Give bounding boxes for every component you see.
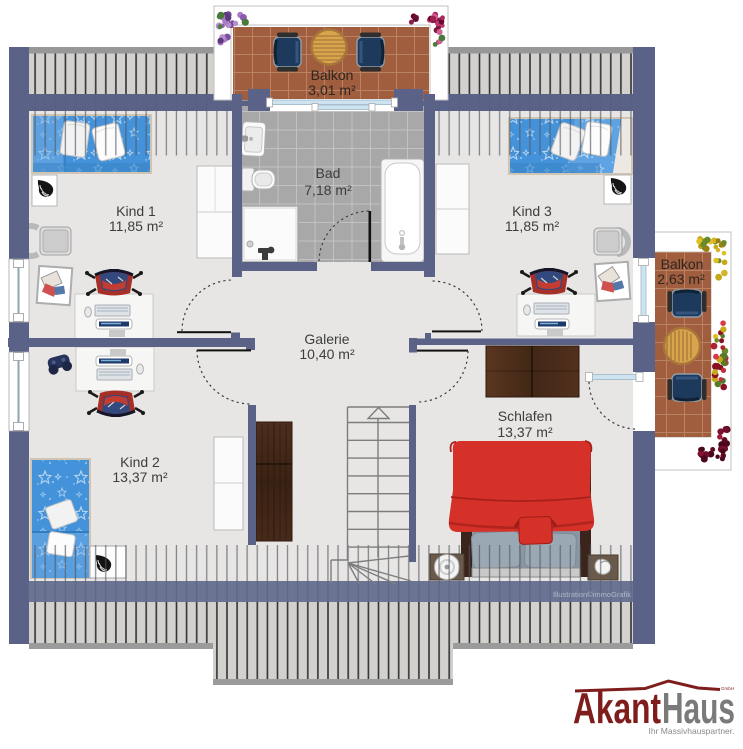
svg-text:11,85 m²: 11,85 m² xyxy=(505,218,560,234)
svg-text:7,18 m²: 7,18 m² xyxy=(304,182,352,198)
svg-text:Schlafen: Schlafen xyxy=(498,408,552,424)
svg-text:2,63 m²: 2,63 m² xyxy=(657,271,705,287)
svg-text:13,37 m²: 13,37 m² xyxy=(112,469,168,485)
svg-text:Balkon: Balkon xyxy=(661,256,704,272)
svg-text:Kind 1: Kind 1 xyxy=(116,203,156,219)
svg-text:Illustration©immoGrafik: Illustration©immoGrafik xyxy=(553,590,631,599)
svg-text:13,37 m²: 13,37 m² xyxy=(497,424,553,440)
svg-text:Balkon: Balkon xyxy=(311,67,354,83)
svg-text:10,40 m²: 10,40 m² xyxy=(299,346,355,362)
svg-text:Ihr Massivhauspartner.: Ihr Massivhauspartner. xyxy=(649,726,735,736)
svg-text:Kind 3: Kind 3 xyxy=(512,203,552,219)
svg-text:11,85 m²: 11,85 m² xyxy=(109,218,164,234)
svg-text:Bad: Bad xyxy=(316,165,341,181)
svg-text:3,01 m²: 3,01 m² xyxy=(308,82,356,98)
svg-text:GmbH: GmbH xyxy=(721,686,734,691)
svg-text:Kind 2: Kind 2 xyxy=(120,454,160,470)
svg-text:Galerie: Galerie xyxy=(304,331,349,347)
